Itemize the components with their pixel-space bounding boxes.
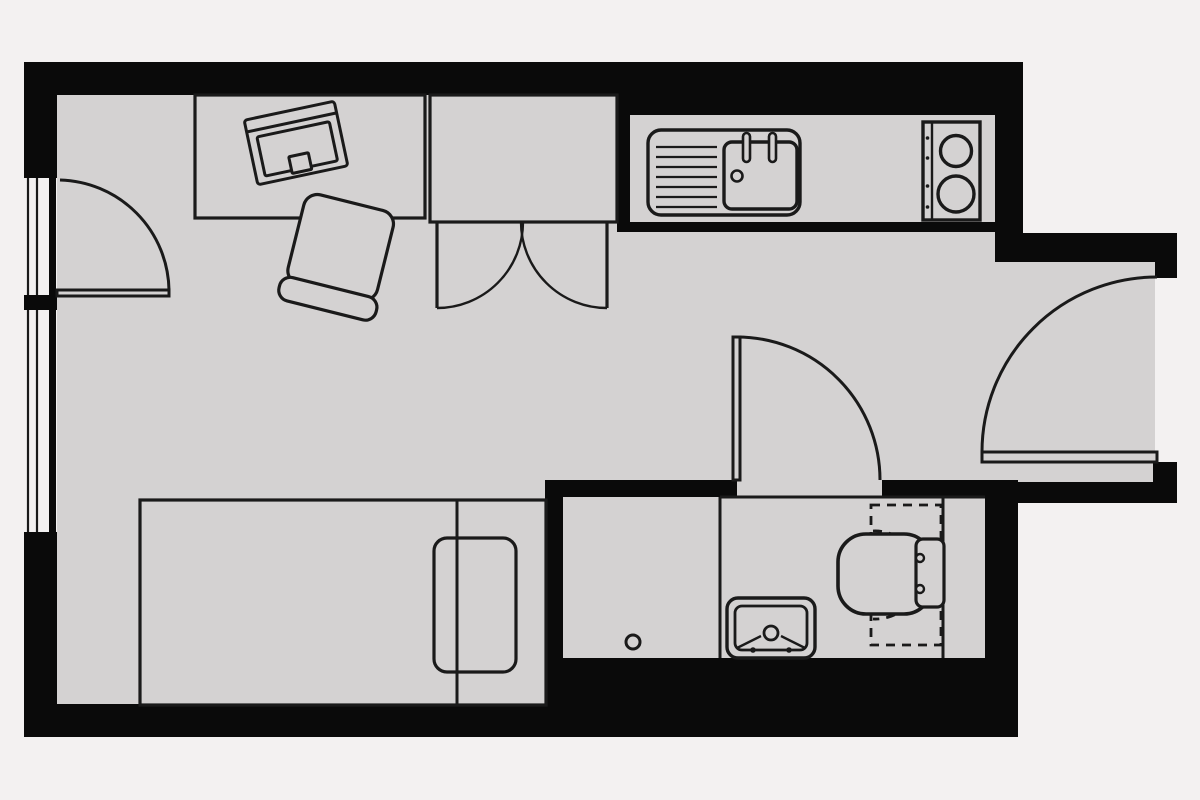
- top-wall: [24, 62, 1023, 95]
- sink-basin: [724, 142, 797, 209]
- kitchen-top-infill: [617, 95, 995, 115]
- left-wall-lower: [24, 532, 57, 737]
- entrance-door-leaf: [982, 452, 1157, 462]
- bed-frame: [140, 500, 546, 705]
- laptop-trackpad: [289, 153, 312, 174]
- floor-plan-page: [0, 0, 1200, 800]
- bathroom-bottom-block: [545, 658, 1018, 737]
- bottom-wall: [24, 704, 563, 737]
- basin-tap: [750, 647, 756, 653]
- floor-plan-image: [0, 0, 1200, 800]
- sink-tap-right: [769, 133, 776, 162]
- toilet-hinge: [916, 554, 924, 562]
- toilet-cistern: [916, 539, 944, 607]
- window-reveal-upper: [49, 178, 56, 295]
- window-glazing: [28, 178, 37, 532]
- floor-drain-circle: [626, 635, 640, 649]
- bed: [140, 500, 546, 705]
- hob-knob: [926, 205, 930, 209]
- kitchen-left-pier: [617, 95, 630, 232]
- left-wall-mid: [24, 295, 57, 310]
- wardrobe-body: [430, 95, 617, 222]
- balcony-door-leaf: [57, 290, 169, 296]
- counter-front-edge: [617, 222, 1000, 232]
- bathroom-basin: [727, 598, 815, 658]
- upper-right-wall: [995, 233, 1177, 262]
- entry-floor: [995, 262, 1155, 482]
- hob-knob: [926, 184, 930, 188]
- kitchen-right-wall: [995, 62, 1023, 233]
- toilet-hinge: [916, 585, 924, 593]
- kitchen-sink: [648, 130, 800, 215]
- hob-knob: [926, 156, 930, 160]
- toilet: [838, 534, 944, 614]
- left-wall-upper: [24, 62, 57, 178]
- window-reveal-lower: [49, 310, 56, 532]
- hob: [923, 122, 980, 220]
- entry-jamb-top: [1155, 262, 1177, 278]
- basin-tap: [786, 647, 792, 653]
- hob-knob: [926, 136, 930, 140]
- bathroom-top-wall-left: [545, 480, 737, 497]
- floor-drain: [626, 635, 640, 649]
- bathroom-top-wall-right: [882, 480, 1018, 497]
- bathroom-door-leaf: [733, 337, 740, 480]
- sink-tap-left: [743, 133, 750, 162]
